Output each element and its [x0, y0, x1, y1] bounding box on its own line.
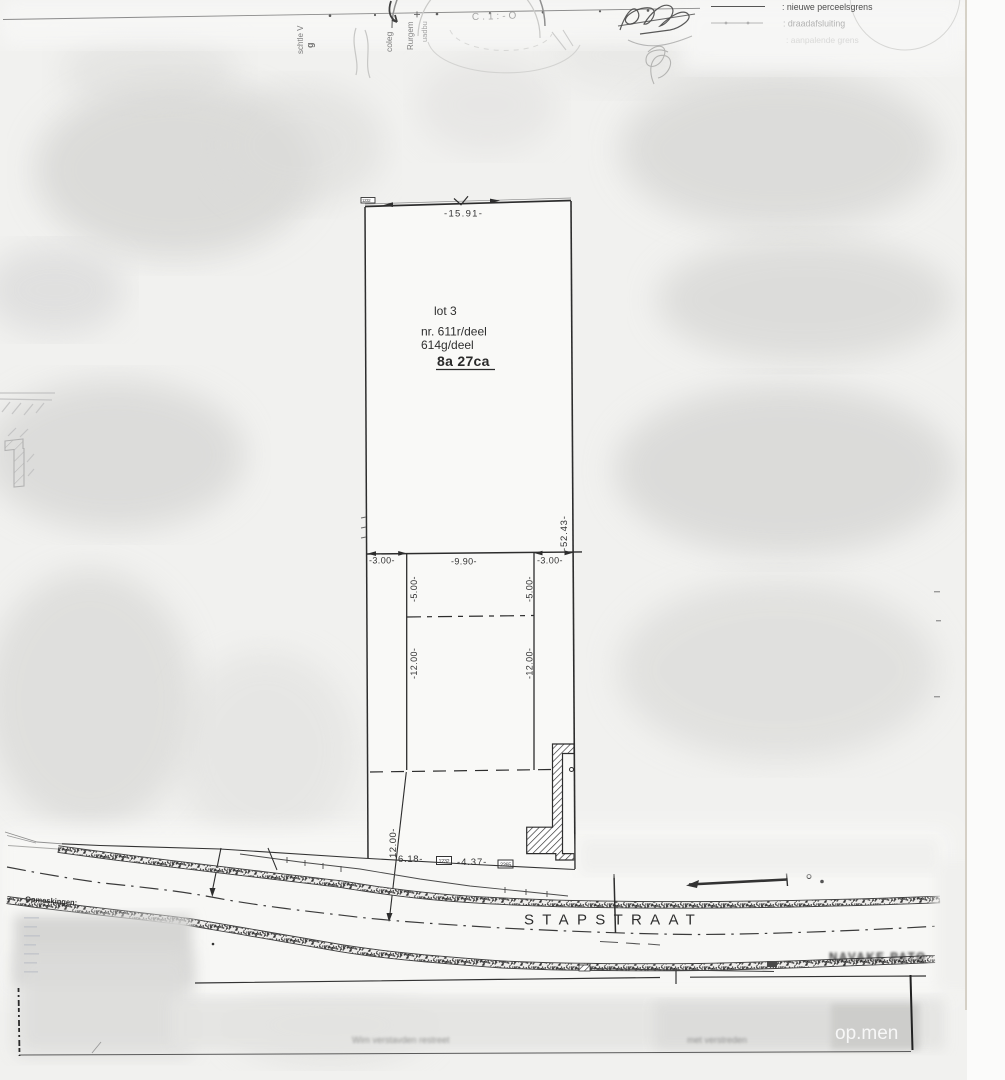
svg-text:-3.00-: -3.00- — [369, 556, 395, 566]
svg-text:-4.37-: -4.37- — [457, 857, 487, 868]
svg-text:-15.91-: -15.91- — [444, 209, 483, 220]
svg-text:NAVAKE PATO: NAVAKE PATO — [829, 952, 927, 964]
svg-text:met verstreden: met verstreden — [687, 1035, 747, 1045]
svg-text:-12.00-: -12.00- — [409, 648, 419, 679]
svg-text:Rurgem: Rurgem — [406, 21, 415, 50]
svg-text:-9.90-: -9.90- — [451, 557, 477, 567]
svg-text:Wim verstavden restreet: Wim verstavden restreet — [352, 1035, 450, 1045]
svg-text:nr. 611r/deel: nr. 611r/deel — [421, 325, 487, 339]
svg-text:: draadafsluiting: : draadafsluiting — [783, 19, 845, 29]
svg-text:614g/deel: 614g/deel — [421, 338, 474, 352]
svg-text:lot 3: lot 3 — [434, 304, 457, 318]
svg-text:-5.00-: -5.00- — [409, 576, 419, 602]
svg-text:-12.00-: -12.00- — [525, 648, 535, 679]
svg-text:op.men: op.men — [835, 1023, 898, 1044]
svg-text:C.1:-O: C.1:-O — [472, 10, 520, 23]
svg-text:uadbu: uadbu — [420, 21, 429, 42]
svg-text:-5.00-: -5.00- — [525, 576, 535, 602]
svg-text:1232: 1232 — [362, 198, 371, 203]
svg-text:6.18-: 6.18- — [398, 854, 423, 865]
svg-text:STAPSTRAAT: STAPSTRAAT — [524, 912, 703, 929]
svg-text:-52.43-: -52.43- — [559, 515, 570, 551]
svg-text:coleg: coleg — [384, 31, 394, 52]
svg-text:8a 27ca: 8a 27ca — [437, 353, 490, 369]
svg-text:-3.00-: -3.00- — [537, 556, 563, 566]
svg-text:schtle V: schtle V — [296, 25, 305, 54]
svg-text:: aanpalende grens: : aanpalende grens — [786, 35, 859, 45]
svg-text:: nieuwe perceelsgrens: : nieuwe perceelsgrens — [782, 2, 873, 12]
svg-text:g: g — [305, 43, 315, 49]
